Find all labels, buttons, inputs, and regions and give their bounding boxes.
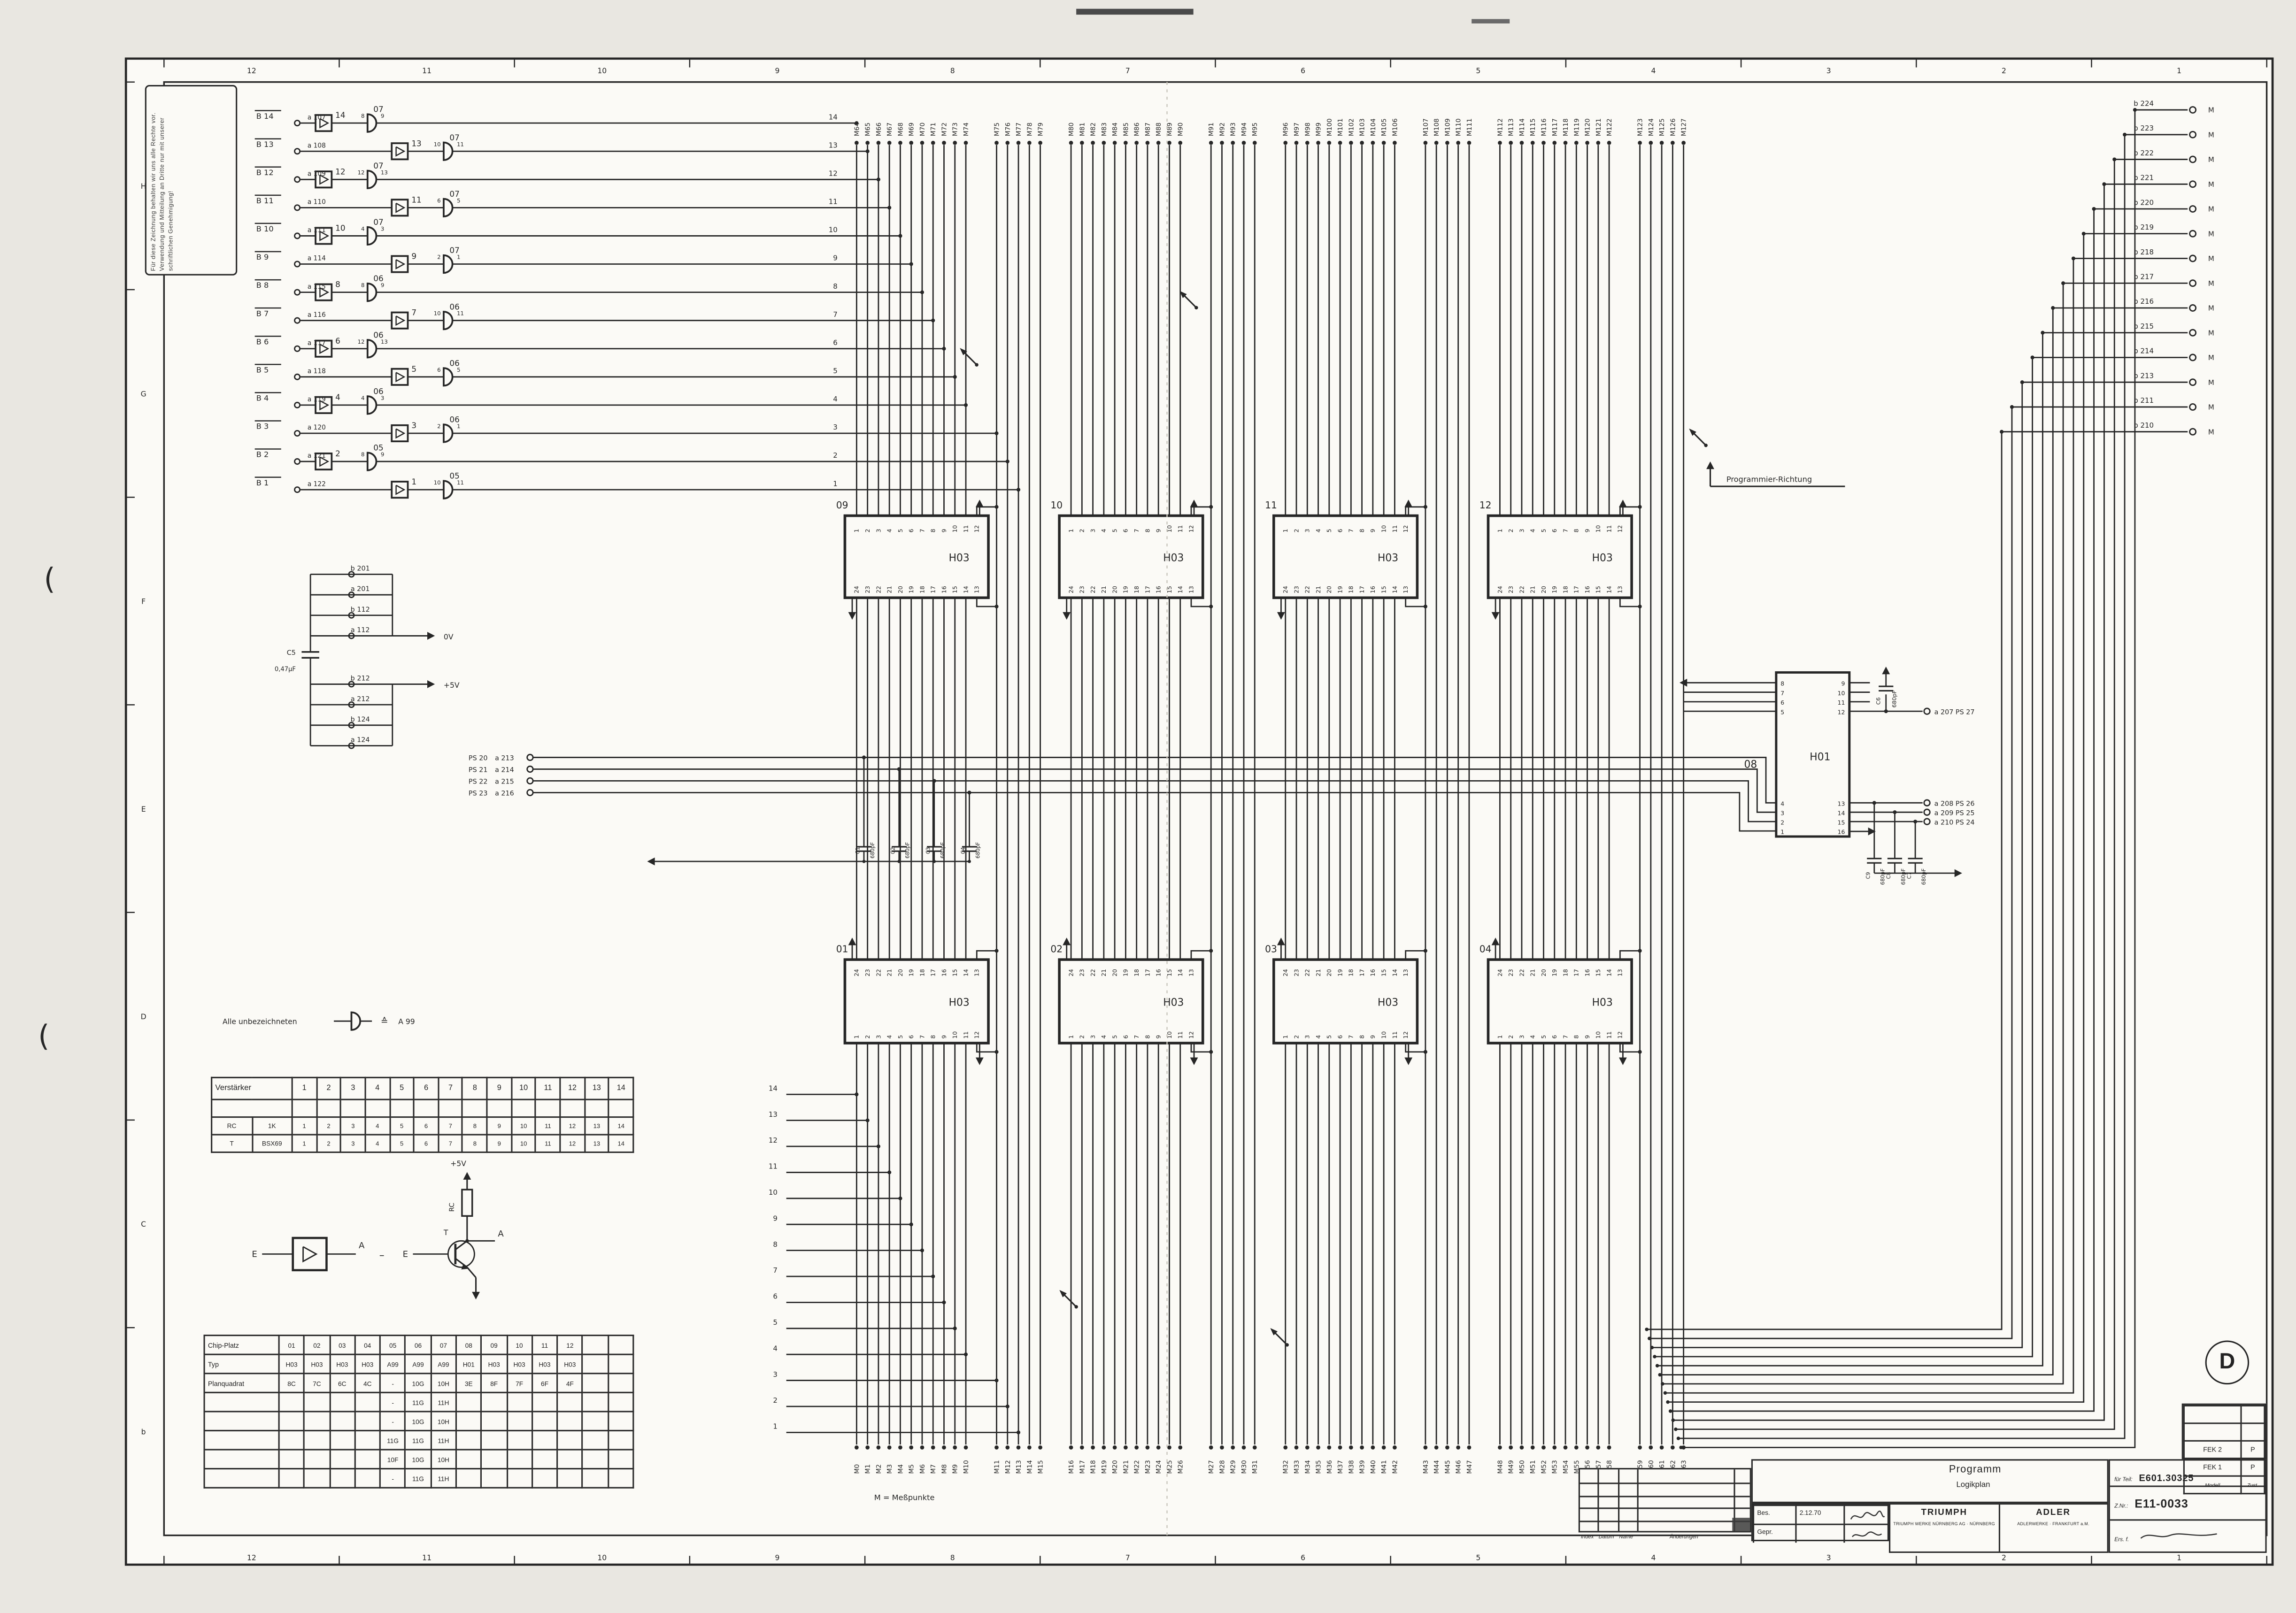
chip-table-extra: 11H: [431, 1392, 456, 1412]
chip-table-extra: [330, 1469, 355, 1488]
top-bus-label: M96: [1282, 123, 1290, 136]
top-bus-label: M83: [1101, 123, 1108, 136]
bottom-bus-label: M7: [930, 1464, 937, 1474]
unmarked-note-value: A 99: [398, 1017, 415, 1026]
ps-label: PS 21: [469, 767, 488, 774]
amplifier-col-header: 7: [439, 1077, 463, 1099]
bus-terminal: [1327, 141, 1331, 145]
bus-terminal: [1102, 1445, 1106, 1450]
bottom-bus-label: M24: [1155, 1460, 1163, 1474]
schematic-sheet: 121211111010998877665544332211HGFEDCb((B…: [0, 0, 2296, 1613]
gate-pin-in: 2: [437, 423, 441, 430]
drawing-number-value: E11-0033: [2134, 1497, 2188, 1510]
chip-pin-number: 1: [1282, 1035, 1289, 1039]
gate-pin-out: 11: [457, 310, 464, 317]
bus-terminal: [1156, 1445, 1161, 1450]
input-signal-label: a 120: [308, 424, 326, 431]
gate-pin-in: 12: [357, 338, 364, 345]
bus-terminal: [1434, 1445, 1439, 1450]
junction-dot: [1679, 1446, 1682, 1449]
input-port-label: B 12: [256, 168, 274, 177]
bus-terminal: [1456, 1445, 1460, 1450]
chip-pin-number: 16: [1584, 969, 1591, 976]
power-pin-label: b 124: [351, 716, 370, 723]
gate-pin-in: 8: [361, 113, 365, 119]
chip-pin-number: 8: [1144, 1035, 1151, 1039]
chip-table-plan: [583, 1374, 608, 1393]
top-bus-label: M92: [1218, 123, 1226, 136]
bus-terminal: [1552, 1445, 1556, 1450]
chip-table-platz: 06: [406, 1336, 431, 1355]
chip-pin-number: 6: [1336, 1035, 1343, 1039]
ps-label: PS 22: [469, 778, 488, 786]
bus-terminal: [1638, 1445, 1642, 1450]
chip-pin-number: 21: [1315, 586, 1322, 593]
prog-direction-note: Programmier-Richtung: [1726, 475, 1812, 484]
chip-pin-number: 8: [1144, 529, 1151, 532]
chip-pin-number: 10: [951, 525, 958, 532]
capacitor-value: 680pF: [905, 842, 911, 859]
amplifier-row-value: 1: [292, 1117, 316, 1135]
line-number: 10: [829, 226, 838, 234]
junction-dot: [898, 1197, 902, 1200]
junction-dot: [1650, 1346, 1654, 1349]
chip-table-plan: -: [380, 1374, 406, 1393]
measure-point-mark: M: [2208, 205, 2214, 214]
rev-col-datum: Datum: [1596, 1534, 1617, 1539]
chip-pin-number: 22: [875, 969, 882, 976]
power-pin-label: b 201: [351, 565, 370, 573]
amplifier-row-value: 12: [560, 1117, 585, 1135]
chip-pin-number: 17: [1573, 586, 1580, 593]
chip-pin-number: 5: [1111, 1035, 1118, 1039]
chip-table-extra: [583, 1430, 608, 1450]
gate-pin-out: 3: [381, 226, 385, 232]
bus-terminal: [1091, 141, 1095, 145]
bus-terminal: [1456, 141, 1460, 145]
line-number: 3: [833, 423, 838, 431]
chip-table-extra: [456, 1450, 481, 1469]
amplifier-col-header: 12: [560, 1077, 585, 1099]
chip-pin-number: 20: [1325, 586, 1333, 593]
chip-pin-number: 1: [1496, 1035, 1503, 1039]
right-port-label: b 220: [2134, 198, 2154, 207]
bottom-bus-label: M9: [952, 1464, 959, 1474]
chip-pin-number: 16: [940, 969, 948, 976]
chip-pin-number: 23: [1079, 586, 1086, 593]
junction-dot: [1677, 1436, 1680, 1440]
bus-terminal: [1596, 1445, 1600, 1450]
top-bus-label: M64: [853, 123, 861, 136]
bus-terminal: [1005, 141, 1009, 145]
chip-pin-number: 13: [1402, 586, 1409, 593]
chip-table-plan: 3E: [456, 1374, 481, 1393]
chip-pin-number: 1: [1496, 529, 1503, 532]
bus-terminal: [1220, 1445, 1224, 1450]
chip-pin-number: 2: [864, 529, 871, 532]
top-bus-label: M70: [919, 123, 926, 136]
chip-pin-number: 14: [1605, 969, 1612, 976]
top-bus-label: M104: [1370, 118, 1377, 136]
chip-pin-number: 19: [1551, 586, 1558, 593]
amplifier-row-value: 8: [462, 1117, 487, 1135]
bus-terminal: [1585, 1445, 1589, 1450]
capacitor-name: C3: [925, 847, 931, 854]
chip-pin-number: 6: [908, 1035, 915, 1039]
input-signal-label: a 116: [308, 311, 326, 319]
amplifier-row-value: 9: [487, 1117, 511, 1135]
revision-table-headers: Index Datum Name Änderungen: [1579, 1534, 1751, 1544]
line-number: 14: [829, 113, 838, 121]
amplifier-col-header: 5: [390, 1077, 414, 1099]
amplifier-blank: [365, 1099, 390, 1117]
input-port-label: B 3: [256, 422, 269, 431]
chip-table-plan: 4C: [355, 1374, 380, 1393]
bus-terminal: [1209, 141, 1213, 145]
line-number: 6: [773, 1292, 778, 1301]
bus-terminal: [1467, 1445, 1472, 1450]
company-triumph-name: TRIUMPH: [1890, 1509, 1998, 1518]
chip-pin-number: 12: [1187, 1031, 1194, 1039]
amplifier-row-part: BSX69: [252, 1135, 292, 1152]
chip-table-platz: 03: [330, 1336, 355, 1355]
bus-terminal: [1091, 1445, 1095, 1450]
line-number: 13: [769, 1110, 778, 1119]
bus-terminal: [1167, 1445, 1171, 1450]
company-triumph: TRIUMPH TRIUMPH WERKE NÜRNBERG AG · NÜRN…: [1890, 1505, 1998, 1552]
bus-terminal: [994, 141, 999, 145]
bottom-bus-label: M28: [1218, 1460, 1226, 1474]
gate-pin-in: 12: [357, 169, 364, 176]
chip-pin-number: 10: [951, 1031, 958, 1039]
amplifier-col-header: 9: [487, 1077, 511, 1099]
bus-terminal: [1209, 1445, 1213, 1450]
chip-pin-number: 22: [875, 586, 882, 593]
chip-pin-number: 19: [908, 586, 915, 593]
amplifier-blank: [560, 1099, 585, 1117]
amplifier-col-header: 4: [365, 1077, 390, 1099]
chip-table-platz: 05: [380, 1336, 406, 1355]
top-bus-label: M115: [1529, 118, 1537, 136]
chip-position-label: 09: [836, 499, 848, 511]
chip-pin-number: 5: [1540, 1035, 1547, 1039]
chip-pin-number: 24: [853, 969, 860, 976]
top-bus-label: M82: [1090, 123, 1097, 136]
amplifier-col-header: 13: [585, 1077, 609, 1099]
grid-row-label: F: [141, 598, 146, 606]
chip-table-plan: 8C: [279, 1374, 304, 1393]
fek-foot-zust: Zust.: [2241, 1476, 2265, 1493]
bus-terminal: [1393, 1445, 1397, 1450]
fek-empty: [2184, 1423, 2241, 1441]
amplifier-col-header: 3: [341, 1077, 365, 1099]
top-bus-label: M76: [1004, 123, 1012, 136]
gate-pin-in: 2: [437, 254, 441, 261]
bottom-bus-label: M48: [1496, 1460, 1504, 1474]
chip-table-plan: 6F: [532, 1374, 557, 1393]
bus-terminal: [1069, 1445, 1073, 1450]
chip-pin-number: 14: [1391, 586, 1398, 593]
amplifier-row-value: 1: [292, 1135, 316, 1152]
chip-pin-number: 20: [1111, 586, 1118, 593]
chip-pin-number: 24: [1496, 586, 1503, 593]
chip-pin-number: 15: [951, 586, 958, 593]
chip-pin-number: 7: [1133, 1035, 1140, 1039]
bus-terminal: [953, 1445, 957, 1450]
amplifier-row-value: 2: [316, 1135, 341, 1152]
punch-hole-mark: (: [38, 1019, 49, 1053]
chip-pin-number: 10: [1838, 690, 1845, 697]
bottom-bus-label: M41: [1380, 1460, 1388, 1474]
measure-point-mark: M: [2208, 279, 2214, 288]
punch-hole-mark: (: [44, 562, 55, 596]
amplifier-number: 1: [411, 477, 416, 486]
bottom-bus-label: M19: [1101, 1460, 1108, 1474]
chip-pin-number: 14: [962, 969, 969, 976]
input-port-label: B 14: [256, 112, 274, 121]
company-adler: ADLER ADLERWERKE · FRANKFURT a.M.: [1998, 1505, 2107, 1552]
chip-pin-number: 9: [1584, 1035, 1591, 1039]
input-signal-label: a 110: [308, 199, 326, 206]
bus-terminal: [1080, 1445, 1084, 1450]
amplifier-blank: [536, 1099, 560, 1117]
input-port-label: B 5: [256, 365, 269, 374]
power-pin-label: b 212: [351, 675, 370, 683]
top-bus-label: M122: [1606, 118, 1613, 136]
chip-table-platz: 09: [481, 1336, 507, 1355]
amplifier-row-value: 11: [536, 1117, 560, 1135]
grid-col-label: 7: [1125, 1554, 1130, 1562]
chip-position-label: 12: [1479, 499, 1492, 511]
chip-table-extra: [507, 1430, 532, 1450]
chip-pin-number: 11: [1177, 525, 1184, 533]
equiv-dash: –: [379, 1250, 385, 1261]
bus-terminal: [942, 141, 946, 145]
measure-point-mark: M: [2208, 304, 2214, 313]
chip-pin-number: 15: [1595, 969, 1602, 976]
chip-table-extra: [456, 1412, 481, 1431]
gate-pin-in: 6: [437, 197, 441, 204]
bus-terminal: [1585, 141, 1589, 145]
junction-dot: [1424, 949, 1427, 952]
right-port-label: b 221: [2134, 174, 2154, 182]
bottom-bus-label: M44: [1433, 1460, 1441, 1474]
drawing-number-label: Z.Nr.:: [2114, 1503, 2128, 1509]
chip-table-typ: H03: [279, 1354, 304, 1374]
rev-col-name: Name: [1617, 1534, 1636, 1539]
chip-pin-number: 4: [1315, 529, 1322, 532]
grid-row-label: b: [141, 1428, 146, 1436]
line-number: 11: [769, 1162, 778, 1171]
amplifier-row-value: 6: [414, 1117, 439, 1135]
capacitor-value: 680pF: [940, 842, 946, 859]
gate-pin-in: 8: [361, 451, 365, 458]
chip-pin-number: 2: [864, 1035, 871, 1039]
chip-position-label: 01: [836, 944, 848, 955]
chip-table-extra: 11G: [380, 1430, 406, 1450]
junction-dot: [1424, 1050, 1427, 1054]
bus-terminal: [1424, 141, 1428, 145]
junction-dot: [1653, 1355, 1656, 1358]
ps-signal-label: a 215: [495, 778, 514, 786]
grid-col-label: 11: [422, 67, 431, 75]
chip-pin-number: 22: [1518, 969, 1525, 976]
chip-pin-number: 21: [1529, 969, 1536, 976]
chip-table-extra: [355, 1412, 380, 1431]
chip-position-label: 10: [1050, 499, 1063, 511]
bus-terminal: [1552, 141, 1556, 145]
top-bus-label: M111: [1466, 118, 1473, 136]
junction-dot: [994, 605, 998, 608]
chip-pin-number: 7: [1562, 1035, 1569, 1039]
chip-table-extra: [304, 1392, 330, 1412]
input-signal-label: a 122: [308, 480, 326, 488]
bus-terminal: [1531, 1445, 1535, 1450]
ps-signal-label: a 213: [495, 755, 514, 762]
bus-terminal: [1124, 1445, 1128, 1450]
chip-pin-number: 17: [1358, 586, 1365, 593]
bus-terminal: [1498, 141, 1502, 145]
right-port-label: b 215: [2134, 322, 2154, 330]
gate-pin-out: 11: [457, 141, 464, 147]
top-bus-label: M116: [1540, 118, 1548, 136]
chip-table-extra: [456, 1392, 481, 1412]
chip-table-platz: [583, 1336, 608, 1355]
chip-table-typ: A99: [406, 1354, 431, 1374]
bus-terminal: [1574, 1445, 1579, 1450]
power-pin-label: a 124: [351, 737, 370, 744]
top-bus-label: M77: [1015, 123, 1023, 136]
bottom-bus-label: M39: [1359, 1460, 1366, 1474]
bus-terminal: [1596, 141, 1600, 145]
chip-pin-number: 2: [1507, 529, 1514, 532]
chip-pin-number: 7: [1780, 690, 1784, 697]
revision-table: [1579, 1468, 1751, 1532]
amplifier-row-value: 8: [462, 1135, 487, 1152]
junction-dot: [920, 1249, 924, 1252]
gate-pin-out: 1: [457, 423, 461, 430]
chip-table-platz: 07: [431, 1336, 456, 1355]
chip-pin-number: 7: [1562, 529, 1569, 532]
amplifier-blank: [212, 1099, 293, 1117]
bottom-bus-label: M37: [1337, 1460, 1344, 1474]
chip-pin-number: 6: [908, 529, 915, 532]
grid-col-label: 3: [1826, 67, 1831, 75]
input-port-label: B 2: [256, 450, 269, 459]
ps-label: PS 20: [469, 755, 488, 762]
chip-pin-number: 10: [1595, 1031, 1602, 1039]
amplifier-row-value: 4: [365, 1117, 390, 1135]
fek2-value: P: [2241, 1441, 2265, 1458]
bottom-bus-label: M42: [1391, 1460, 1399, 1474]
chip-pin-number: 7: [918, 529, 925, 532]
chip-table-row-header: [204, 1412, 279, 1431]
bottom-bus-label: M1: [864, 1464, 872, 1474]
company-block: TRIUMPH TRIUMPH WERKE NÜRNBERG AG · NÜRN…: [1889, 1503, 2109, 1553]
chip-pin-number: 6: [1551, 529, 1558, 532]
rail-label: +5V: [450, 1160, 466, 1168]
chip-pin-number: 9: [1369, 529, 1376, 532]
top-bus-label: M100: [1326, 118, 1333, 136]
bus-terminal: [1360, 1445, 1364, 1450]
bottom-bus-label: M50: [1518, 1460, 1526, 1474]
bus-terminal: [1038, 141, 1042, 145]
chip-pin-number: 11: [962, 525, 969, 533]
bottom-bus-label: M34: [1304, 1460, 1311, 1474]
gate-pin-in: 6: [437, 367, 441, 373]
chip-table-plan: 8F: [481, 1374, 507, 1393]
chip-pin-number: 18: [918, 586, 925, 593]
bus-terminal: [964, 1445, 968, 1450]
top-bus-label: M119: [1573, 118, 1580, 136]
bus-terminal: [1445, 141, 1449, 145]
bottom-bus-label: M4: [897, 1464, 904, 1474]
input-port-label: B 10: [256, 224, 274, 233]
measure-point-mark: M: [2208, 230, 2214, 238]
bus-terminal: [1520, 141, 1524, 145]
chip-pin-number: 4: [1100, 529, 1107, 532]
bus-terminal: [1294, 1445, 1299, 1450]
grid-col-label: 6: [1301, 67, 1305, 75]
right-port-label: b 210: [2134, 421, 2154, 430]
chip-pin-number: 1: [1067, 529, 1074, 532]
chip-pin-number: 14: [1177, 586, 1184, 593]
top-bus-label: M123: [1637, 118, 1644, 136]
chip-pin-number: 19: [1336, 969, 1343, 976]
gate-pin-in: 10: [434, 310, 441, 317]
bus-terminal: [1017, 141, 1021, 145]
replacement-row: Ers. f.: [2110, 1519, 2265, 1554]
chip-pin-number: 4: [1315, 1035, 1322, 1039]
equiv-input-label: E: [403, 1250, 408, 1260]
bus-terminal: [1434, 141, 1439, 145]
measure-point-mark: M: [2208, 329, 2214, 337]
chip-pin-number: 3: [1089, 529, 1096, 532]
bus-terminal: [1382, 141, 1386, 145]
bus-terminal: [1134, 141, 1139, 145]
chip-table-extra: [557, 1450, 583, 1469]
junction-dot: [994, 1379, 998, 1383]
bottom-bus-label: M43: [1422, 1460, 1430, 1474]
chip-pin-number: 8: [1573, 529, 1580, 532]
format-d-letter: D: [2219, 1349, 2235, 1374]
bus-terminal: [931, 1445, 935, 1450]
fek-empty: [2241, 1423, 2265, 1441]
fek1-value: P: [2241, 1459, 2265, 1476]
top-bus-label: M80: [1068, 123, 1075, 136]
chip-pin-number: 5: [1780, 708, 1784, 715]
chip-pin-number: 6: [1122, 1035, 1129, 1039]
h01-output-label: a 208 PS 26: [1934, 800, 1975, 807]
rail-label: +5V: [444, 681, 460, 690]
chip-table-extra: [481, 1430, 507, 1450]
company-triumph-sub: TRIUMPH WERKE NÜRNBERG AG · NÜRNBERG: [1890, 1520, 1998, 1526]
capacitor-value: 680pF: [1921, 868, 1927, 885]
chip-pin-number: 22: [1089, 969, 1096, 976]
bus-terminal: [1294, 141, 1299, 145]
program-mark: [1074, 1305, 1078, 1308]
chip-table-extra: [507, 1450, 532, 1469]
chip-pin-number: 11: [1391, 525, 1398, 533]
junction-dot: [1661, 1382, 1664, 1385]
amplifier-col-header: 11: [536, 1077, 560, 1099]
bottom-bus-label: M21: [1122, 1460, 1130, 1474]
top-bus-label: M94: [1240, 123, 1248, 136]
chip-pin-number: 18: [1562, 586, 1569, 593]
bus-terminal: [1069, 141, 1073, 145]
chip-pin-number: 5: [897, 529, 904, 532]
grid-col-label: 3: [1826, 1554, 1831, 1562]
